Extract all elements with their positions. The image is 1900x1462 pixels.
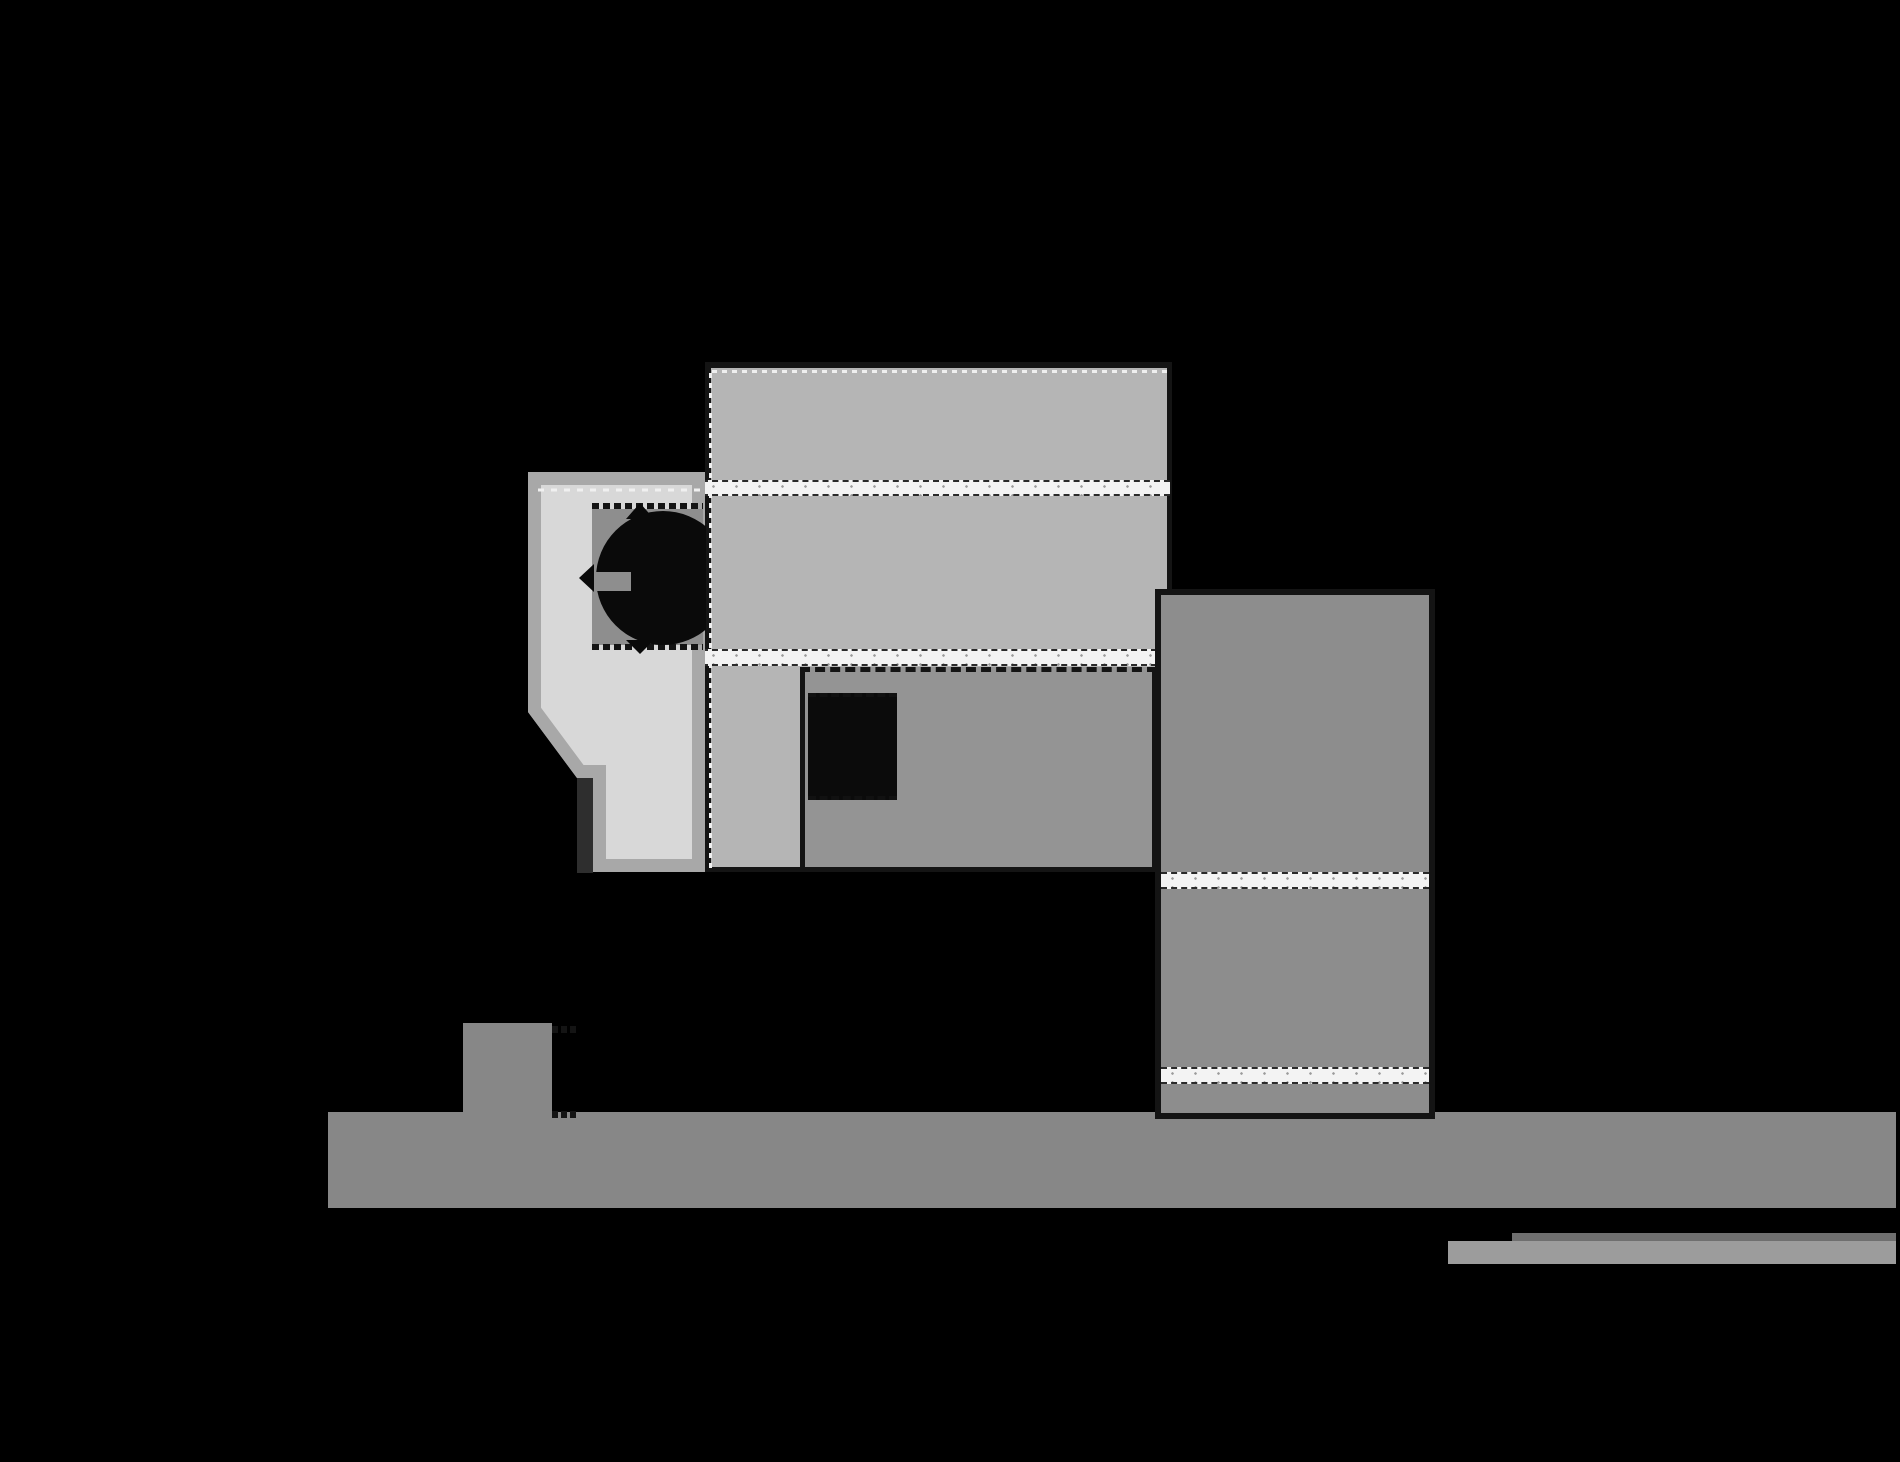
tree-canopy-notch [596,572,631,591]
house-dark-post [577,778,593,873]
rear-block-top-stipple [712,370,1167,373]
elevation-drawing-canvas [0,0,1900,1462]
tower-band-upper [1161,872,1429,889]
wall-bar-light [1448,1241,1896,1264]
tower-band-lower [1161,1067,1429,1084]
chimney-block [463,1023,552,1115]
middle-window [808,693,897,800]
tower-block [1155,589,1435,1119]
render-band-lower [702,649,1157,666]
render-band-upper [702,480,1170,496]
house-block [510,455,725,880]
chimney-joint-mark-bottom [552,1111,578,1118]
chimney-joint-mark-top [552,1026,578,1033]
middle-block [800,667,1157,872]
ground-strip [328,1112,1896,1208]
wall-bar-dark [1512,1233,1896,1241]
